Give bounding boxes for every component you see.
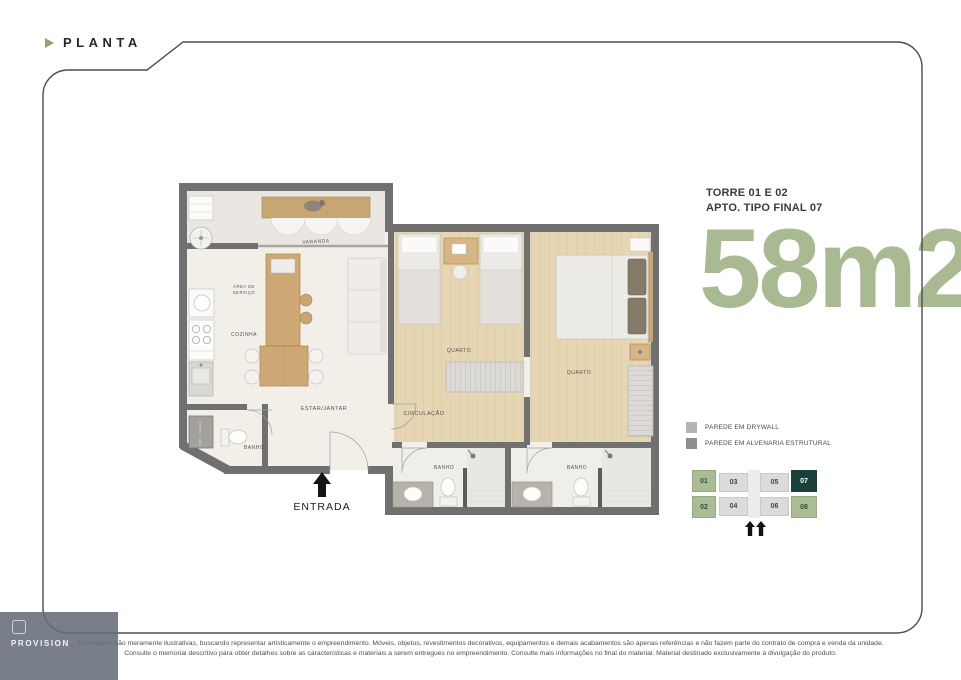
room-label-quarto-2: QUARTO — [567, 370, 591, 376]
headboard — [648, 252, 653, 342]
planta-header: PLANTA — [45, 35, 142, 50]
room-label-banho-social: BANHO — [244, 445, 264, 451]
legend-row: PAREDE EM DRYWALL — [686, 419, 831, 435]
keyplan-unit-07: 07 — [791, 470, 817, 492]
sofa — [348, 258, 386, 354]
room-label-banho-2: BANHO — [567, 465, 587, 471]
keyplan-unit-04: 04 — [719, 497, 748, 516]
floor-plan: VARANDA ÁREA DE SERVIÇO COZINHA ESTAR/JA… — [170, 178, 670, 523]
tower-label: TORRE 01 E 02 — [706, 186, 822, 201]
keyplan-unit-02: 02 — [692, 496, 716, 518]
keyplan-unit-06: 06 — [760, 497, 789, 516]
entrance-arrow-icon — [313, 472, 331, 497]
room-label-servico-1: ÁREA DE — [233, 284, 255, 289]
area-value: 58m2, — [699, 213, 961, 325]
drywall-swatch — [686, 422, 697, 433]
entrance-label: ENTRADA — [293, 501, 350, 513]
keyplan-unit-01: 01 — [692, 470, 716, 492]
disclaimer: As imagens são meramente ilustrativas, b… — [0, 639, 961, 658]
alvenaria-swatch — [686, 438, 697, 449]
room-label-servico-2: SERVIÇO — [233, 290, 256, 295]
watermark-label: PROVISION — [11, 639, 70, 648]
wardrobe-1 — [446, 362, 523, 392]
desk-chair — [453, 265, 467, 279]
wardrobe-2 — [628, 366, 653, 436]
keyplan-unit-05: 05 — [760, 473, 789, 492]
planta-arrow-icon — [45, 38, 54, 48]
keyplan-unit-03: 03 — [719, 473, 748, 492]
wall-legend: PAREDE EM DRYWALL PAREDE EM ALVENARIA ES… — [686, 419, 831, 451]
room-label-circulacao: CIRCULAÇÃO — [403, 410, 444, 417]
shaft-label: PROJ. SANCA — [198, 420, 202, 446]
planta-title: PLANTA — [63, 35, 142, 50]
alvenaria-label: PAREDE EM ALVENARIA ESTRUTURAL — [705, 440, 831, 447]
room-label-cozinha: COZINHA — [231, 332, 257, 338]
disclaimer-line-1: As imagens são meramente ilustrativas, b… — [0, 639, 961, 649]
room-label-banho-1: BANHO — [434, 465, 454, 471]
watermark-logo-icon — [12, 620, 26, 634]
keyplan: 01 02 03 04 05 06 07 08 — [690, 468, 820, 540]
varanda-bench — [262, 197, 371, 235]
room-label-quarto-1: QUARTO — [447, 348, 471, 354]
disclaimer-line-2: Consulte o memorial descritivo para obte… — [0, 649, 961, 659]
keyplan-unit-08: 08 — [791, 496, 817, 518]
legend-row: PAREDE EM ALVENARIA ESTRUTURAL — [686, 435, 831, 451]
watermark: PROVISION — [0, 612, 118, 680]
keyplan-corridor — [748, 470, 760, 518]
brochure-page: { "header": { "label": "PLANTA", "arrow_… — [0, 0, 961, 680]
drywall-label: PAREDE EM DRYWALL — [705, 424, 779, 431]
room-label-estar-jantar: ESTAR/JANTAR — [301, 406, 347, 412]
elevator-arrows-icon — [744, 520, 768, 538]
